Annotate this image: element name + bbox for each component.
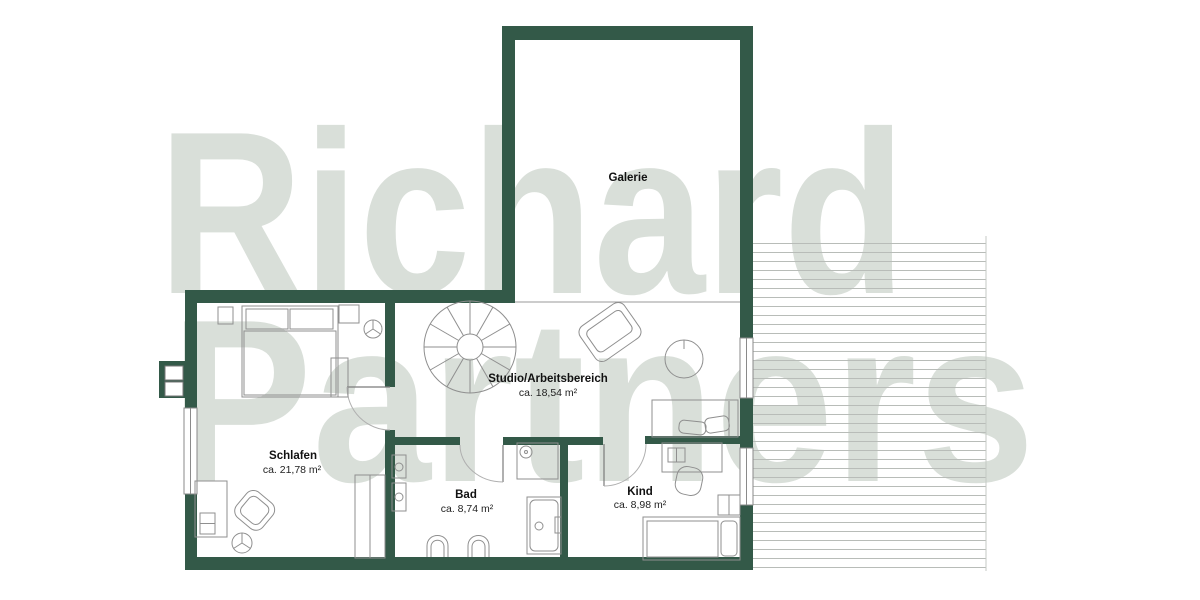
window-right-kind: [740, 448, 753, 505]
label-galerie: Galerie: [609, 172, 648, 184]
wall-studio-bad-b: [503, 437, 603, 445]
terrace-decking-lines: [753, 236, 986, 571]
wall-studio-bad-a: [395, 437, 460, 445]
label-studio-area: ca. 18,54 m²: [519, 387, 578, 399]
window-right-studio: [740, 338, 753, 398]
terrace-decking: [753, 236, 986, 571]
chimney: [159, 361, 190, 398]
chimney-flue-2: [165, 382, 183, 396]
wall-bottom: [185, 557, 753, 570]
label-kind: Kind: [627, 486, 653, 498]
label-kind-area: ca. 8,98 m²: [614, 499, 667, 511]
toilet-icon: [427, 536, 448, 558]
wall-galerie-top: [502, 26, 753, 40]
wall-right-upper: [740, 26, 753, 338]
label-schlafen-area: ca. 21,78 m²: [263, 464, 322, 476]
label-bad-area: ca. 8,74 m²: [441, 503, 494, 515]
floor-plan-canvas: Richard Partners: [0, 0, 1200, 600]
chimney-flue-1: [165, 366, 183, 380]
label-schlafen: Schlafen: [269, 450, 317, 462]
wall-schlafen-bad-lower: [385, 430, 395, 557]
wall-schlafen-studio-upper: [385, 303, 395, 387]
label-bad: Bad: [455, 489, 477, 501]
wall-right-mid: [740, 398, 753, 448]
wall-galerie-left: [502, 26, 515, 303]
label-studio: Studio/Arbeitsbereich: [488, 373, 608, 385]
plant-icon: [232, 533, 252, 553]
bidet-icon: [468, 536, 489, 558]
floor-plan-svg: Richard Partners: [0, 0, 1200, 600]
